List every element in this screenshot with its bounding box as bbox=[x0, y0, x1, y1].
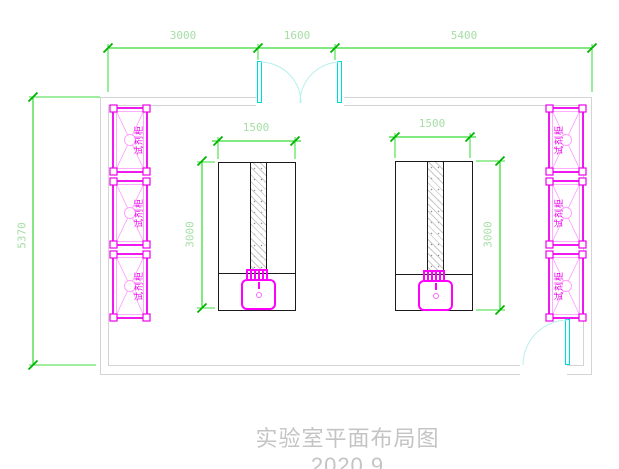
drawing-title: 实验室平面布局图2020.9 bbox=[220, 421, 475, 469]
dimension-label-bench-left-depth: 3000 bbox=[184, 215, 197, 255]
double-door-left-leaf-icon bbox=[257, 61, 262, 103]
room-wall-inner bbox=[108, 105, 584, 366]
cabinet-label: 试剂柜 bbox=[552, 195, 564, 231]
cabinet-label: 试剂柜 bbox=[552, 268, 564, 304]
door-opening-top bbox=[256, 95, 344, 108]
dimension-label-bench-left-width: 1500 bbox=[221, 121, 291, 134]
dimension-label-room-depth: 5370 bbox=[16, 216, 29, 256]
floor-plan-canvas: 试剂柜 试剂柜 试剂柜 试剂柜 试剂柜 试剂柜 3000 1600 5400 5… bbox=[0, 0, 619, 469]
door-opening-bottom bbox=[520, 361, 567, 376]
dimension-label-top-left: 3000 bbox=[143, 29, 223, 42]
single-door-leaf-icon bbox=[565, 319, 570, 365]
sink-icon bbox=[418, 280, 453, 311]
bench-service-chase bbox=[427, 162, 444, 274]
cabinet-label: 试剂柜 bbox=[132, 122, 144, 158]
dimension-label-bench-right-depth: 3000 bbox=[482, 215, 495, 255]
double-door-right-leaf-icon bbox=[337, 61, 342, 103]
cabinet-label: 试剂柜 bbox=[132, 268, 144, 304]
dimension-label-bench-right-width: 1500 bbox=[397, 117, 467, 130]
cabinet-label: 试剂柜 bbox=[552, 122, 564, 158]
sink-icon bbox=[241, 279, 276, 310]
dimension-label-top-right: 5400 bbox=[424, 29, 504, 42]
bench-service-chase bbox=[250, 163, 267, 273]
lab-bench-right bbox=[395, 161, 473, 311]
lab-bench-left bbox=[218, 162, 296, 311]
dimension-label-top-middle: 1600 bbox=[262, 29, 332, 42]
cabinet-label: 试剂柜 bbox=[132, 195, 144, 231]
